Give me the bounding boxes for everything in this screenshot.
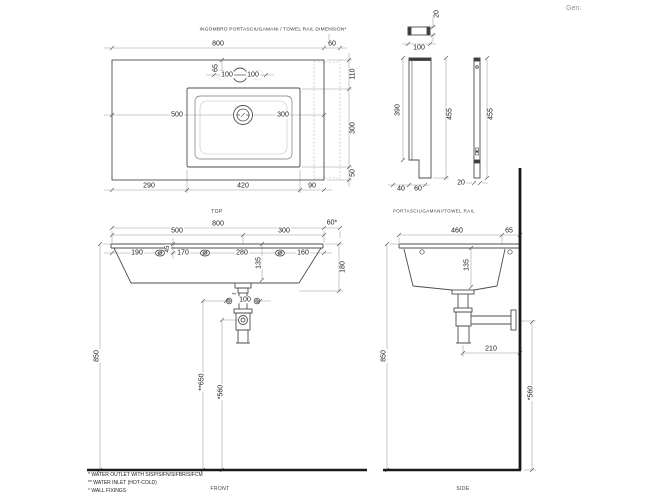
dim-side-65: 65 [504, 227, 514, 234]
dim-top-60: 60 [327, 40, 337, 47]
footnote-wall-fixings: ° WALL FIXINGS [88, 489, 126, 494]
top-view-label: TOP [211, 209, 222, 215]
dim-side-850: 850 [380, 349, 387, 363]
dim-top-50: 50 [349, 168, 356, 178]
dim-front-500: 500 [170, 227, 184, 234]
dim-rail-455-front: 455 [446, 107, 453, 121]
dim-rail-100: 100 [412, 44, 426, 51]
dim-front-45: 45 [165, 245, 171, 254]
dim-front-160: 160 [296, 249, 310, 256]
dim-front-560: *560 [217, 384, 224, 400]
front-dim-lines [100, 228, 343, 470]
dim-front-60: 60* [326, 219, 339, 226]
top-view-dim-lines [104, 34, 352, 193]
dim-top-300-right: 300 [349, 121, 356, 135]
dim-rail-455-side: 455 [487, 107, 494, 121]
dim-front-280: 280 [235, 249, 249, 256]
dim-front-180: 180 [339, 260, 346, 274]
siphon-side [452, 290, 516, 343]
dim-front-190: 190 [130, 249, 144, 256]
dim-side-460: 460 [450, 227, 464, 234]
front-view-label: FRONT [210, 486, 229, 492]
dim-top-300-center: 300 [276, 111, 290, 118]
towel-rail-dotted-outline [314, 60, 340, 180]
dim-rail-20-top: 20 [433, 9, 440, 19]
dim-top-290: 290 [142, 182, 156, 189]
dim-front-135: 135 [255, 256, 262, 270]
dim-rail-20-side: 20 [456, 179, 466, 186]
towel-rail-label: PORTASCIUGAMANI/TOWEL RAIL [393, 209, 475, 214]
towel-rail-dimension-note: INGOMBRO PORTASCIUGAMANI / TOWEL RAIL DI… [200, 28, 347, 33]
dim-rail-390: 390 [394, 103, 401, 117]
dim-front-170: 170 [176, 249, 190, 256]
dim-top-110: 110 [349, 67, 356, 80]
dim-top-500: 500 [170, 111, 184, 118]
dim-rail-40: 40 [396, 185, 406, 192]
dim-top-800: 800 [211, 40, 225, 47]
basin-side-outline [399, 244, 520, 290]
dim-top-90: 90 [307, 182, 317, 189]
water-inlet-marks: ** [231, 293, 237, 298]
footnote-water-outlet: * WATER OUTLET WITH SISP/SIFN/SIFBR/SIFC… [88, 473, 203, 478]
dim-top-420: 420 [236, 182, 250, 189]
top-view-drawing [104, 34, 352, 193]
gen-label: Gen: [566, 5, 581, 12]
drawing-canvas [0, 0, 667, 500]
dim-front-300: 300 [277, 227, 291, 234]
dim-front-100: 100 [238, 296, 252, 303]
dim-top-65: 65 [212, 63, 219, 73]
rail-front-view-shape [409, 58, 431, 178]
dim-side-135: 135 [463, 258, 470, 272]
side-view-label: SIDE [456, 486, 469, 492]
footnote-water-inlet: ** WATER INLET (HOT-COLD) [88, 481, 157, 486]
dim-rail-60: 60 [413, 185, 423, 192]
towel-rail-drawing [388, 17, 489, 187]
dim-front-650: **650 [198, 372, 205, 391]
dim-top-100-left: 100 [220, 71, 234, 78]
front-view-drawing [87, 226, 367, 472]
side-ticks [385, 233, 534, 472]
side-view-drawing [383, 168, 536, 472]
dim-front-800: 800 [211, 220, 225, 227]
dim-top-100-right: 100 [246, 71, 260, 78]
rail-side-view-shape [474, 58, 480, 178]
dim-front-850: 850 [93, 349, 100, 363]
top-view-ticks [110, 46, 351, 192]
dim-side-210: 210 [484, 345, 498, 352]
rail-top-view-shape [408, 27, 430, 35]
front-ticks [98, 226, 342, 472]
technical-drawing-washbasin: Gen: INGOMBRO PORTASCIUGAMANI / TOWEL RA… [0, 0, 667, 500]
dim-side-560: *560 [527, 385, 534, 401]
